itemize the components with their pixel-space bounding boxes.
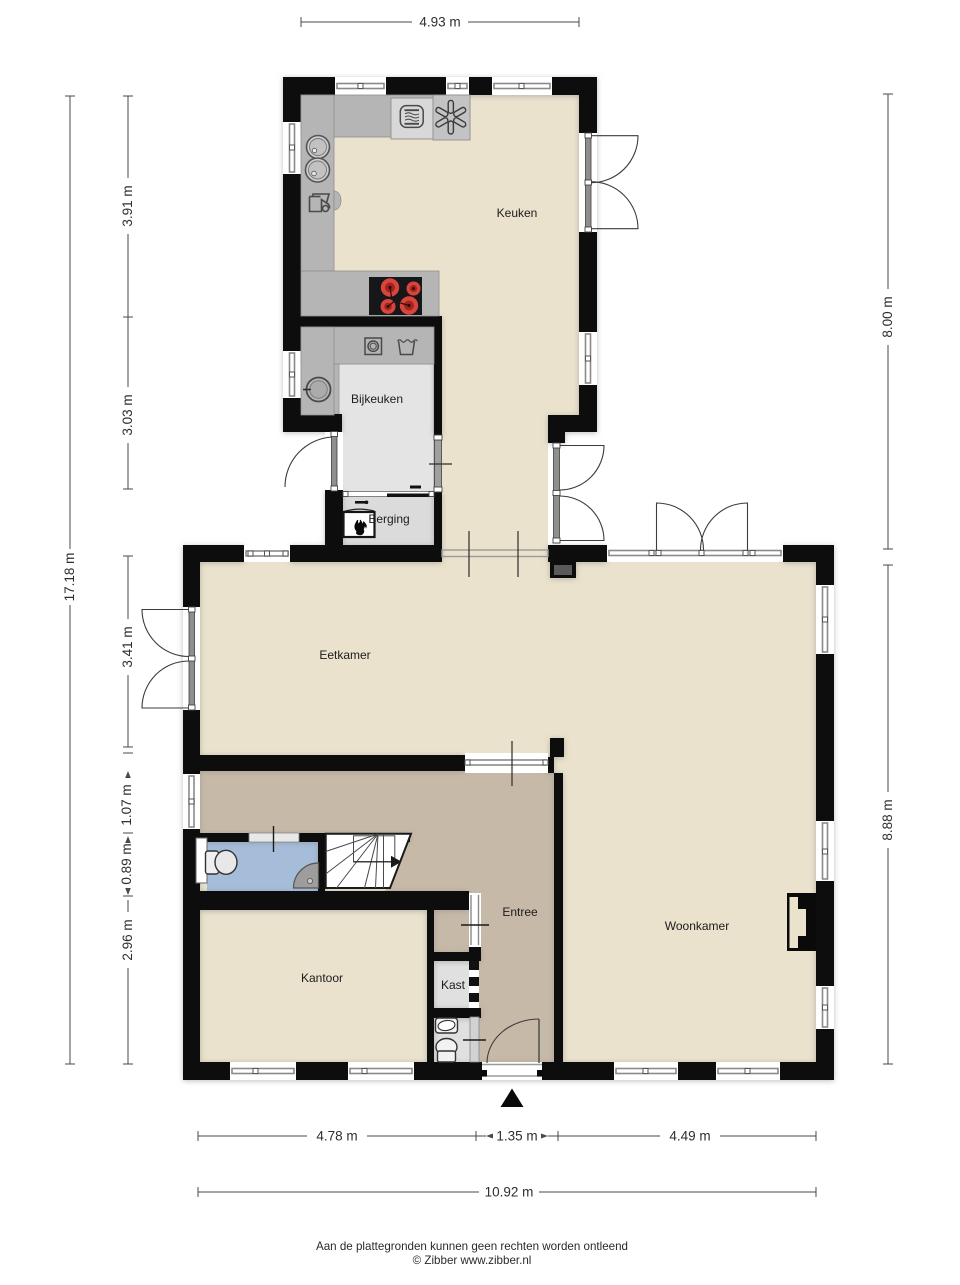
svg-text:0.89 m: 0.89 m	[119, 843, 134, 884]
svg-text:2.96 m: 2.96 m	[120, 919, 135, 960]
svg-text:Eetkamer: Eetkamer	[319, 648, 370, 662]
svg-text:8.88 m: 8.88 m	[880, 799, 895, 840]
svg-text:4.78 m: 4.78 m	[316, 1129, 357, 1144]
svg-text:3.91 m: 3.91 m	[120, 185, 135, 226]
svg-text:10.92 m: 10.92 m	[485, 1185, 534, 1200]
svg-text:© Zibber www.zibber.nl: © Zibber www.zibber.nl	[413, 1254, 532, 1267]
svg-text:8.00 m: 8.00 m	[880, 296, 895, 337]
svg-text:Bijkeuken: Bijkeuken	[351, 392, 403, 406]
svg-text:3.41 m: 3.41 m	[120, 626, 135, 667]
svg-text:Entree: Entree	[502, 905, 538, 919]
svg-text:Aan de plattegronden kunnen ge: Aan de plattegronden kunnen geen rechten…	[316, 1240, 628, 1253]
svg-text:1.35 m: 1.35 m	[496, 1129, 537, 1144]
svg-text:Kast: Kast	[441, 978, 466, 992]
svg-text:Berging: Berging	[368, 512, 409, 526]
svg-text:1.07 m: 1.07 m	[119, 784, 134, 825]
svg-text:Woonkamer: Woonkamer	[665, 919, 729, 933]
svg-text:3.03 m: 3.03 m	[120, 394, 135, 435]
svg-text:17.18 m: 17.18 m	[62, 553, 77, 602]
svg-text:4.49 m: 4.49 m	[669, 1129, 710, 1144]
svg-text:Keuken: Keuken	[497, 206, 538, 220]
svg-text:4.93 m: 4.93 m	[419, 15, 460, 30]
svg-text:Kantoor: Kantoor	[301, 971, 343, 985]
